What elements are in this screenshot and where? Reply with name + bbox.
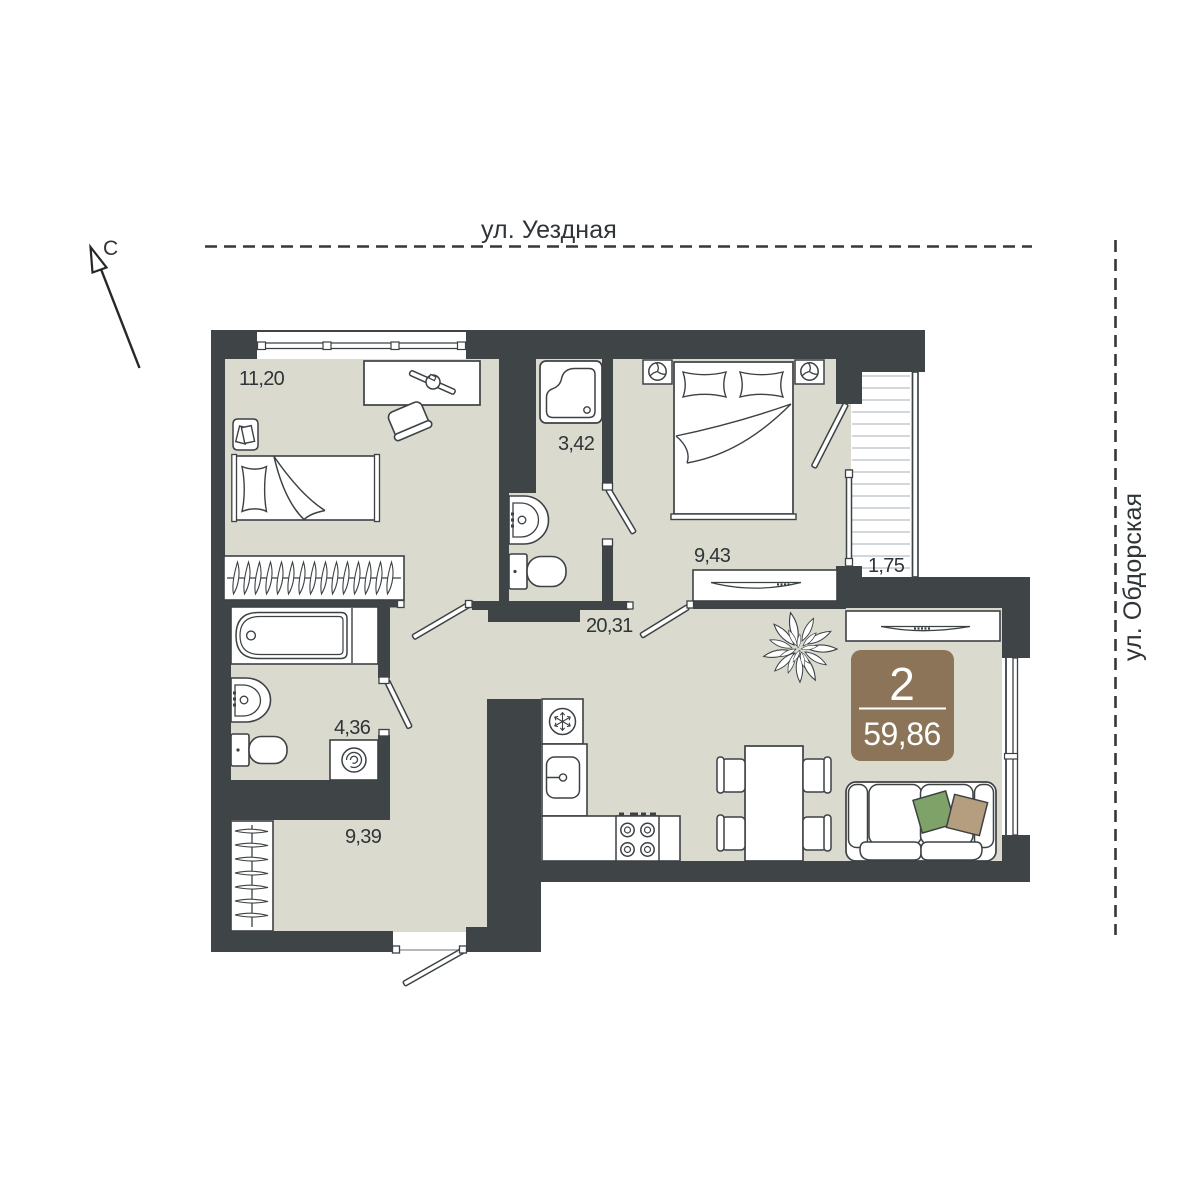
svg-text:2: 2 <box>889 658 915 710</box>
svg-text:20,31: 20,31 <box>586 615 633 637</box>
svg-text:9,43: 9,43 <box>694 545 731 567</box>
svg-text:С: С <box>103 237 118 260</box>
svg-text:1,75: 1,75 <box>868 555 905 577</box>
svg-text:9,39: 9,39 <box>345 826 382 848</box>
svg-text:11,20: 11,20 <box>239 368 285 390</box>
svg-text:59,86: 59,86 <box>863 716 941 752</box>
svg-text:ул. Обдорская: ул. Обдорская <box>1119 493 1147 661</box>
svg-text:3,42: 3,42 <box>558 433 595 455</box>
svg-text:4,36: 4,36 <box>334 717 371 739</box>
svg-text:ул. Уездная: ул. Уездная <box>481 216 617 244</box>
